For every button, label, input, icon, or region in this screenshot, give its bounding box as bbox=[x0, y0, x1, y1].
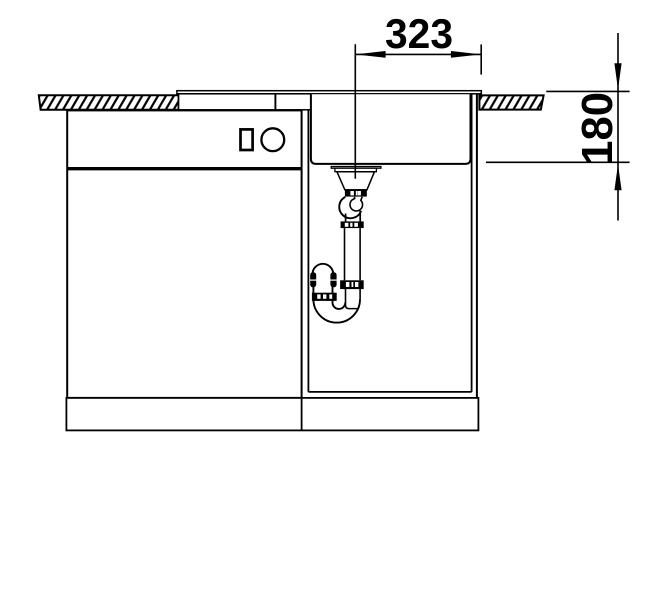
svg-text:323: 323 bbox=[385, 10, 453, 57]
svg-text:180: 180 bbox=[574, 92, 622, 165]
